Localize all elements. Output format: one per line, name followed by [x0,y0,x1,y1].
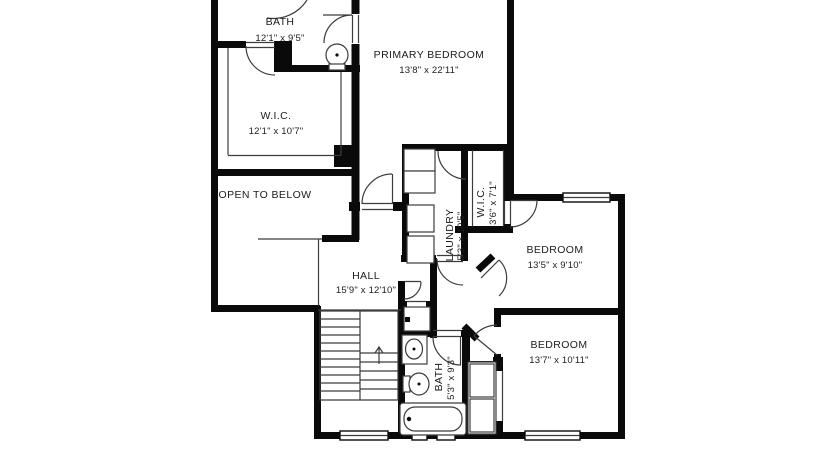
toilet [326,44,348,70]
washer [407,205,434,232]
room-dims: 15'9" x 12'10" [336,285,396,296]
laundry-cabinet [404,149,435,171]
room-label-primary-bedroom: PRIMARY BEDROOM 13'8" x 22'11" [374,49,485,76]
room-dims: 5'3" x 10'5" [456,211,467,260]
room-name: W.I.C. [475,187,487,218]
room-label-bath-lower: BATH 5'3" x 9'3" [433,356,457,400]
door-arc [324,15,352,43]
stair-treads [320,319,360,391]
room-dims: 3'6" x 7'1" [488,181,499,225]
room-label-bedroom-ne: BEDROOM 13'5" x 9'10" [526,244,583,271]
room-dims: 12'1" x 10'7" [249,126,304,137]
door-jamb [349,202,360,211]
room-label-wic-bedroom: W.I.C. 3'6" x 7'1" [475,181,499,225]
linen-closet-knob [405,317,410,322]
door-arc [474,325,497,336]
toilet [403,373,429,395]
room-label-bath-upper: BATH 12'1" x 9'5" [255,16,304,44]
laundry-cabinet [404,171,435,193]
door-jamb [393,202,404,211]
staircase [318,310,401,400]
room-name: OPEN TO BELOW [219,189,312,201]
floor-plan-canvas: BATH 12'1" x 9'5" PRIMARY BEDROOM 13'8" … [0,0,835,467]
door-frame [362,204,393,210]
sink-vanity [402,335,427,364]
room-label-wic-primary: W.I.C. 12'1" x 10'7" [249,110,304,137]
room-dims: 5'3" x 9'3" [446,356,457,400]
door-arc [362,174,392,204]
room-dims: 13'7" x 10'11" [529,355,588,366]
room-label-open-to-below: OPEN TO BELOW [219,189,312,201]
door-arc [510,200,537,227]
room-dims: 13'8" x 22'11" [399,65,458,76]
stair-outline [318,310,401,400]
room-label-laundry: LAUNDRY 5'3" x 10'5" [444,209,467,262]
door-frame [505,201,511,224]
door-arc [404,282,421,299]
bathtub [400,403,466,435]
room-name: W.I.C. [261,110,292,122]
dryer [407,236,434,263]
door-frame [433,331,461,337]
door-frame [353,15,359,43]
room-name: BEDROOM [526,244,583,256]
room-dims: 12'1" x 9'5" [255,33,304,44]
room-name: HALL [352,270,380,282]
closet-door-panel [470,364,494,397]
room-dims: 13'5" x 9'10" [528,260,583,271]
room-label-bedroom-se: BEDROOM 13'7" x 10'11" [529,339,588,366]
room-label-hall: HALL 15'9" x 12'10" [336,270,396,296]
door-arc [437,259,463,285]
room-name: PRIMARY BEDROOM [374,49,485,61]
railing [258,239,322,306]
floor-plan: BATH 12'1" x 9'5" PRIMARY BEDROOM 13'8" … [0,0,835,467]
room-name: BATH [433,363,445,392]
door-arc [499,260,507,296]
room-name: BATH [266,16,295,28]
door-arc [246,46,275,75]
room-name: BEDROOM [530,339,587,351]
room-name: LAUNDRY [444,209,456,262]
closet-door-panel [470,399,494,432]
door-leaf [474,336,497,355]
